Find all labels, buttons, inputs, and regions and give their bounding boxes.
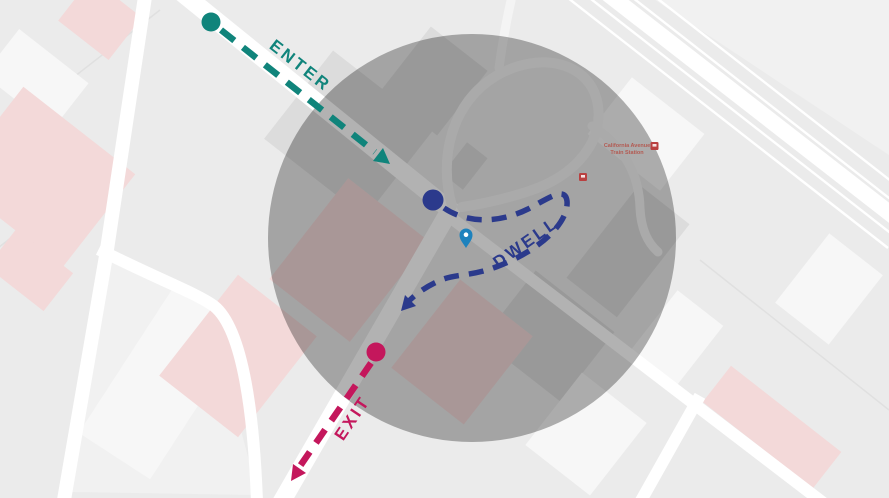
transit-poi-icon-glyph xyxy=(581,175,585,178)
map-visualization: California Avenue Train Station ENTER DW… xyxy=(0,0,889,498)
dwell-start-dot xyxy=(423,190,444,211)
location-pin-hole xyxy=(464,232,469,237)
transit-station-icon-glyph xyxy=(653,144,657,147)
exit-start-dot xyxy=(367,343,386,362)
transit-poi-icon xyxy=(579,173,587,181)
station-label-line1: California Avenue xyxy=(604,143,650,149)
map-canvas: California Avenue Train Station ENTER DW… xyxy=(0,0,889,498)
transit-station-icon xyxy=(651,142,659,150)
enter-start-dot xyxy=(202,13,221,32)
station-label-line2: Train Station xyxy=(610,150,644,156)
